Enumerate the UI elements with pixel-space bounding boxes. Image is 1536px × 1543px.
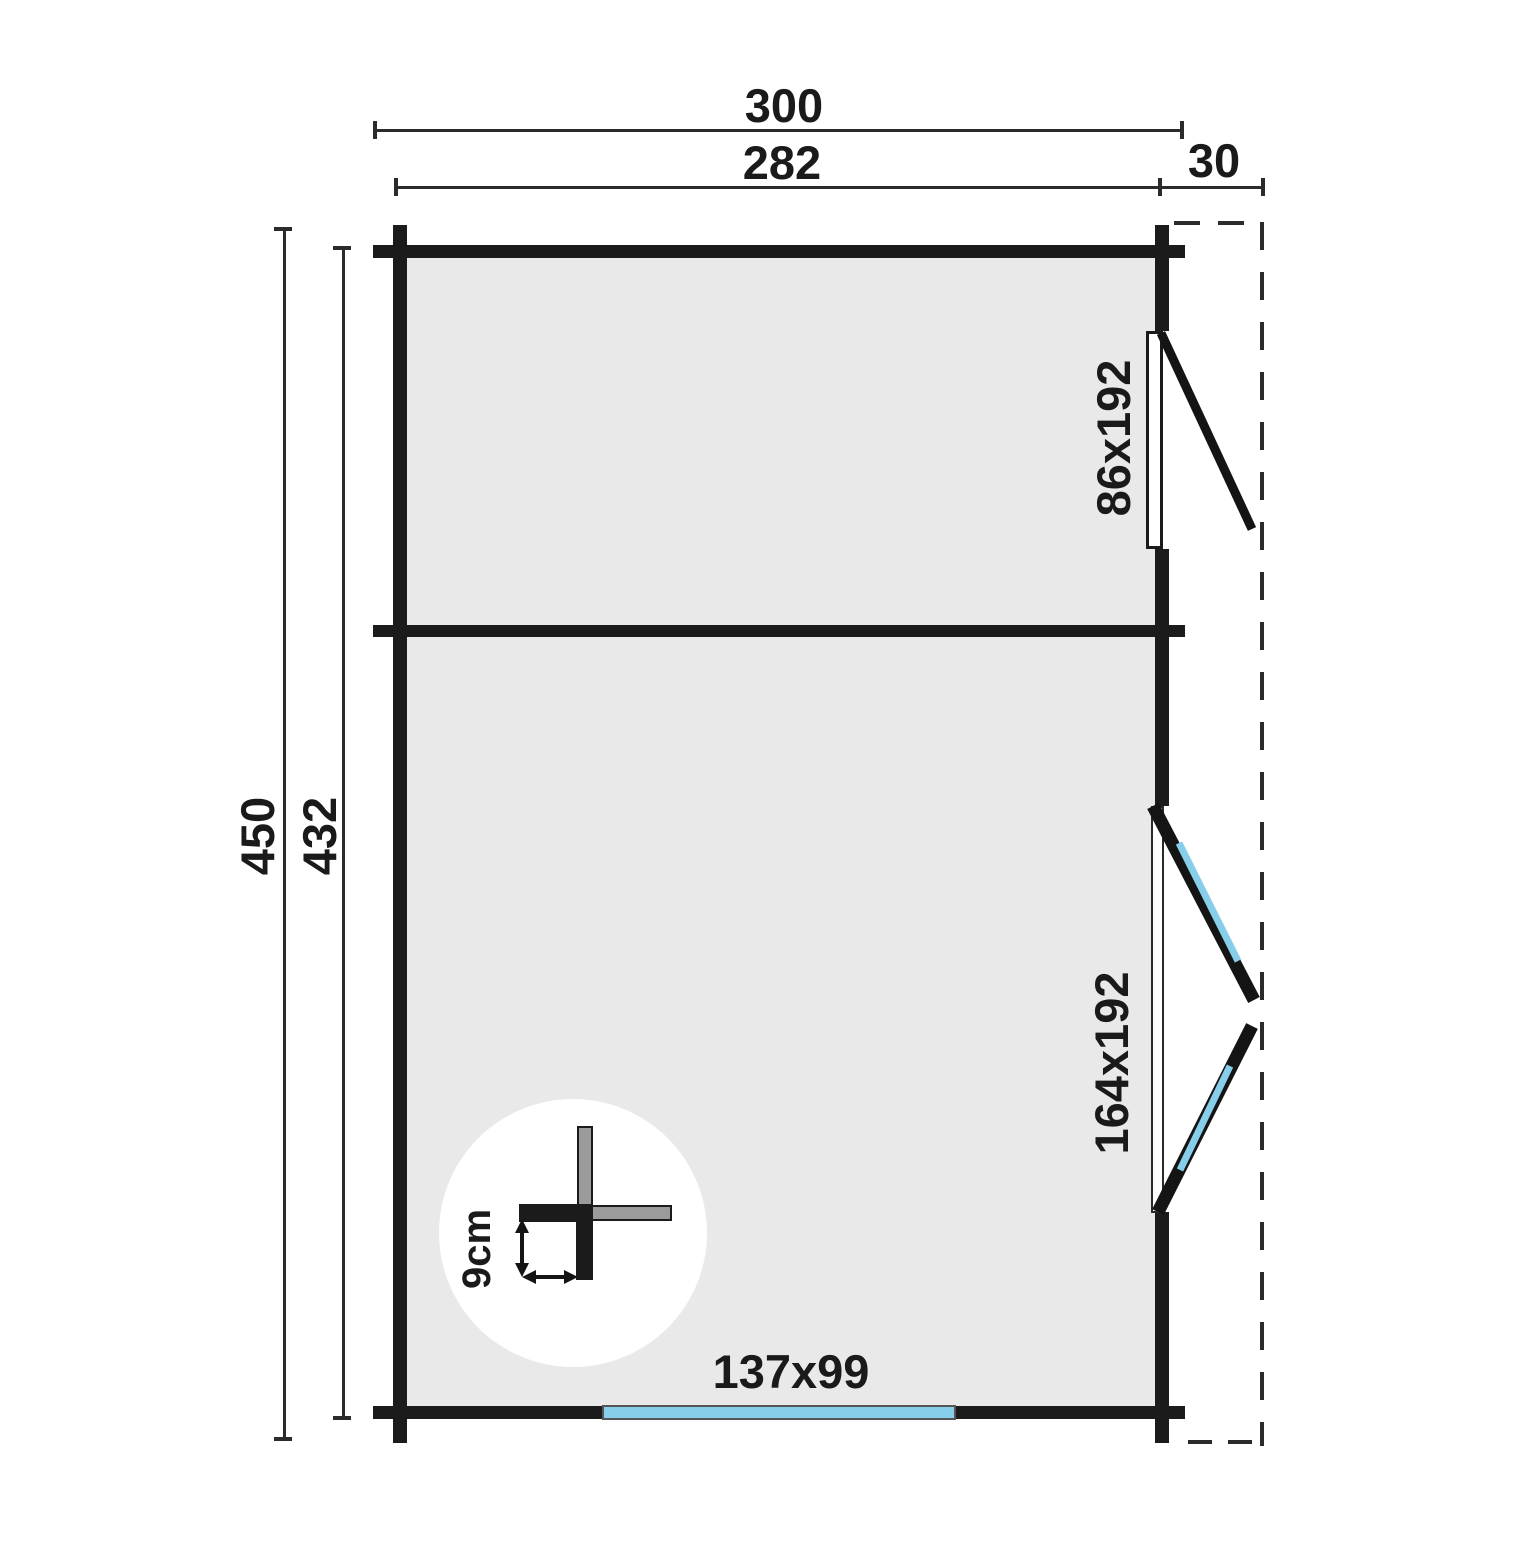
tick bbox=[1158, 178, 1162, 196]
tick bbox=[274, 1437, 292, 1441]
side-window-swing-line bbox=[1161, 333, 1252, 529]
wall-thickness-label: 9cm bbox=[455, 1179, 499, 1319]
dim-label-depth-inner: 432 bbox=[296, 736, 344, 936]
dim-label-side-overhang: 30 bbox=[1164, 137, 1264, 185]
arrowhead-right bbox=[564, 1270, 578, 1284]
double-door-upper-leaf-outline bbox=[1153, 806, 1254, 1000]
dim-label-width-inner: 282 bbox=[682, 139, 882, 187]
dim-label-depth-total: 450 bbox=[234, 736, 282, 936]
double-door-upper-leaf-glazing bbox=[1179, 843, 1238, 961]
double-door-lower-leaf-glazing bbox=[1180, 1066, 1230, 1170]
opening-label-double-door: 164x192 bbox=[1088, 933, 1136, 1193]
opening-label-side-window: 86x192 bbox=[1090, 328, 1138, 548]
opening-label-front-window: 137x99 bbox=[691, 1348, 891, 1396]
arrowhead-up bbox=[515, 1219, 529, 1233]
tick bbox=[333, 246, 351, 250]
tick bbox=[394, 178, 398, 196]
tick bbox=[274, 227, 292, 231]
tick bbox=[333, 1416, 351, 1420]
plan-overlay bbox=[0, 0, 1536, 1543]
tick bbox=[373, 121, 377, 139]
floor-plan-canvas: 300 282 30 450 432 86x192 164x192 137x99… bbox=[0, 0, 1536, 1543]
dim-label-width-total: 300 bbox=[684, 82, 884, 130]
